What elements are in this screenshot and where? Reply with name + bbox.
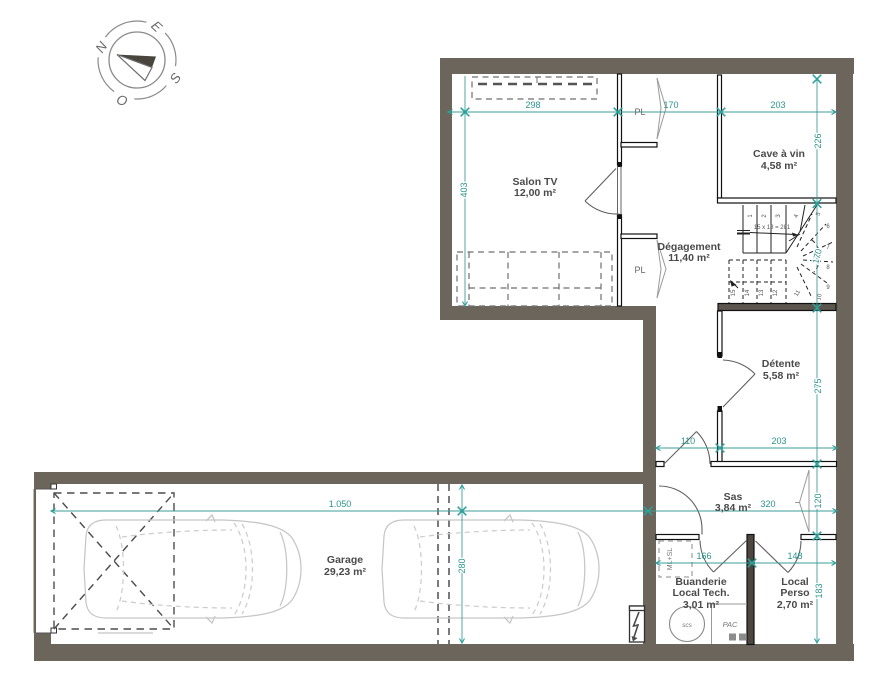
svg-text:320: 320 <box>760 499 775 509</box>
svg-text:403: 403 <box>459 182 469 197</box>
svg-text:11,40 m²: 11,40 m² <box>668 252 710 264</box>
svg-text:203: 203 <box>770 100 785 110</box>
svg-text:ML+SL: ML+SL <box>667 548 674 570</box>
svg-text:Perso: Perso <box>780 587 809 599</box>
svg-text:1.050: 1.050 <box>329 499 352 509</box>
svg-text:3,84 m²: 3,84 m² <box>715 502 752 514</box>
svg-text:166: 166 <box>696 551 711 561</box>
svg-text:4,58 m²: 4,58 m² <box>761 160 798 172</box>
svg-text:Cave à vin: Cave à vin <box>753 148 805 160</box>
svg-text:170: 170 <box>663 100 678 110</box>
svg-text:Détente: Détente <box>762 358 801 370</box>
svg-text:12,00 m²: 12,00 m² <box>514 187 557 199</box>
svg-text:PL: PL <box>634 107 645 117</box>
svg-text:PAC: PAC <box>723 620 738 629</box>
svg-text:15: 15 <box>731 289 737 296</box>
svg-text:15 x 18 = 281: 15 x 18 = 281 <box>754 225 791 231</box>
svg-text:Local Tech.: Local Tech. <box>673 587 730 599</box>
svg-text:Garage: Garage <box>327 554 363 566</box>
svg-text:226: 226 <box>813 133 823 148</box>
svg-text:2,70 m²: 2,70 m² <box>777 599 814 611</box>
svg-text:148: 148 <box>787 551 802 561</box>
svg-text:298: 298 <box>525 100 540 110</box>
svg-text:12: 12 <box>773 289 779 296</box>
svg-text:PL: PL <box>634 265 645 275</box>
svg-text:3,01 m²: 3,01 m² <box>683 599 720 611</box>
svg-text:275: 275 <box>813 378 823 393</box>
svg-text:29,23 m²: 29,23 m² <box>324 566 367 578</box>
svg-text:13: 13 <box>759 289 765 296</box>
svg-text:203: 203 <box>771 436 786 446</box>
svg-text:280: 280 <box>457 558 467 573</box>
svg-text:scs: scs <box>682 622 693 629</box>
svg-text:183: 183 <box>814 583 824 598</box>
svg-text:5,58 m²: 5,58 m² <box>763 370 800 382</box>
svg-text:120: 120 <box>813 493 823 508</box>
svg-text:14: 14 <box>745 289 751 296</box>
svg-text:110: 110 <box>681 436 695 446</box>
